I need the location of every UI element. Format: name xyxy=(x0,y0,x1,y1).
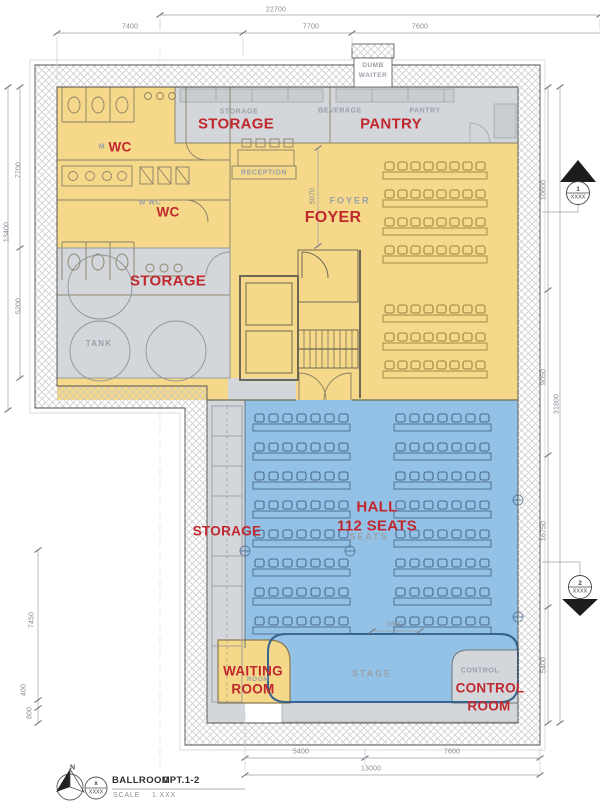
label-control-room-2: ROOM xyxy=(467,699,510,713)
scale-value: 1:XXX xyxy=(152,792,176,799)
dim-left-low-3: 800 xyxy=(27,707,34,719)
smalltext-wc-w: W WC xyxy=(139,200,161,207)
label-foyer: FOYER xyxy=(305,210,362,226)
dim-bottom-total: 13000 xyxy=(361,766,381,773)
dim-top-total: 22700 xyxy=(266,7,286,14)
dim-right-3: 16750 xyxy=(541,521,548,541)
dim-right-total: 31800 xyxy=(554,394,561,414)
dim-bottom-1: 5400 xyxy=(293,749,309,756)
dim-left-low-1: 7450 xyxy=(29,612,36,628)
label-waiting-room-2: ROOM xyxy=(231,682,274,696)
smalltext-control: CONTROL xyxy=(461,668,500,675)
label-storage-mid: STORAGE xyxy=(130,274,206,289)
smalltext-reception: RECEPTION xyxy=(241,170,287,177)
drawing-variant: OPT.1-2 xyxy=(162,776,200,786)
section1-number: 1 xyxy=(576,187,579,193)
ref-bubble-bottom: XXXX xyxy=(89,790,104,796)
smalltext-tank: TANK xyxy=(86,340,112,348)
dim-top-1: 7400 xyxy=(122,24,138,31)
section2-number: 2 xyxy=(578,581,581,587)
label-storage-top: STORAGE xyxy=(198,117,274,132)
dim-right-2: 9050 xyxy=(541,369,548,385)
north-label: N xyxy=(70,765,76,772)
smalltext-stage: STAGE xyxy=(352,670,392,679)
dim-aisle: 1600 xyxy=(387,622,403,629)
section2-ref: XXXX xyxy=(573,589,588,595)
label-pantry: PANTRY xyxy=(360,117,422,132)
smalltext-dumb: DUMB xyxy=(362,63,384,70)
label-control-room-1: CONTROL xyxy=(456,681,525,695)
smalltext-waiting: ROOM xyxy=(247,677,269,684)
label-wc-men: WC xyxy=(108,140,131,154)
smalltext-beverage: BEVERAGE xyxy=(318,108,362,115)
tank-room-area xyxy=(57,248,230,378)
dim-right-1: 10600 xyxy=(541,180,548,200)
dim-left-3: 5200 xyxy=(16,298,23,314)
section1-ref: XXXX xyxy=(571,195,586,201)
ref-bubble-top: x xyxy=(94,781,97,787)
dim-left-1: 7700 xyxy=(16,162,23,178)
smalltext-pantry: PANTRY xyxy=(409,108,440,115)
scale-label: SCALE xyxy=(113,792,140,799)
core-gray-patch xyxy=(228,378,296,400)
smalltext-wc-m: M xyxy=(99,144,105,151)
smalltext-storage: STORAGE xyxy=(220,109,258,116)
smalltext-waiter: WAITER xyxy=(359,73,387,80)
dim-top-3: 7600 xyxy=(412,24,428,31)
dim-foyer-depth: 5070 xyxy=(310,188,317,204)
dim-top-2: 7700 xyxy=(303,24,319,31)
dim-right-4: 5400 xyxy=(541,657,548,673)
smalltext-seats: SEATS xyxy=(349,533,388,542)
smalltext-foyer: FOYER xyxy=(330,197,371,206)
label-wc-women: WC xyxy=(156,205,179,219)
dim-left-2: 13400 xyxy=(4,222,11,242)
dim-left-low-2: 400 xyxy=(21,684,28,696)
dim-bottom-2: 7600 xyxy=(444,749,460,756)
floor-plan-canvas: STORAGE PANTRY WC WC FOYER STORAGE HALL … xyxy=(0,0,600,807)
label-storage-side: STORAGE xyxy=(193,524,262,538)
label-hall: HALL xyxy=(356,500,397,515)
